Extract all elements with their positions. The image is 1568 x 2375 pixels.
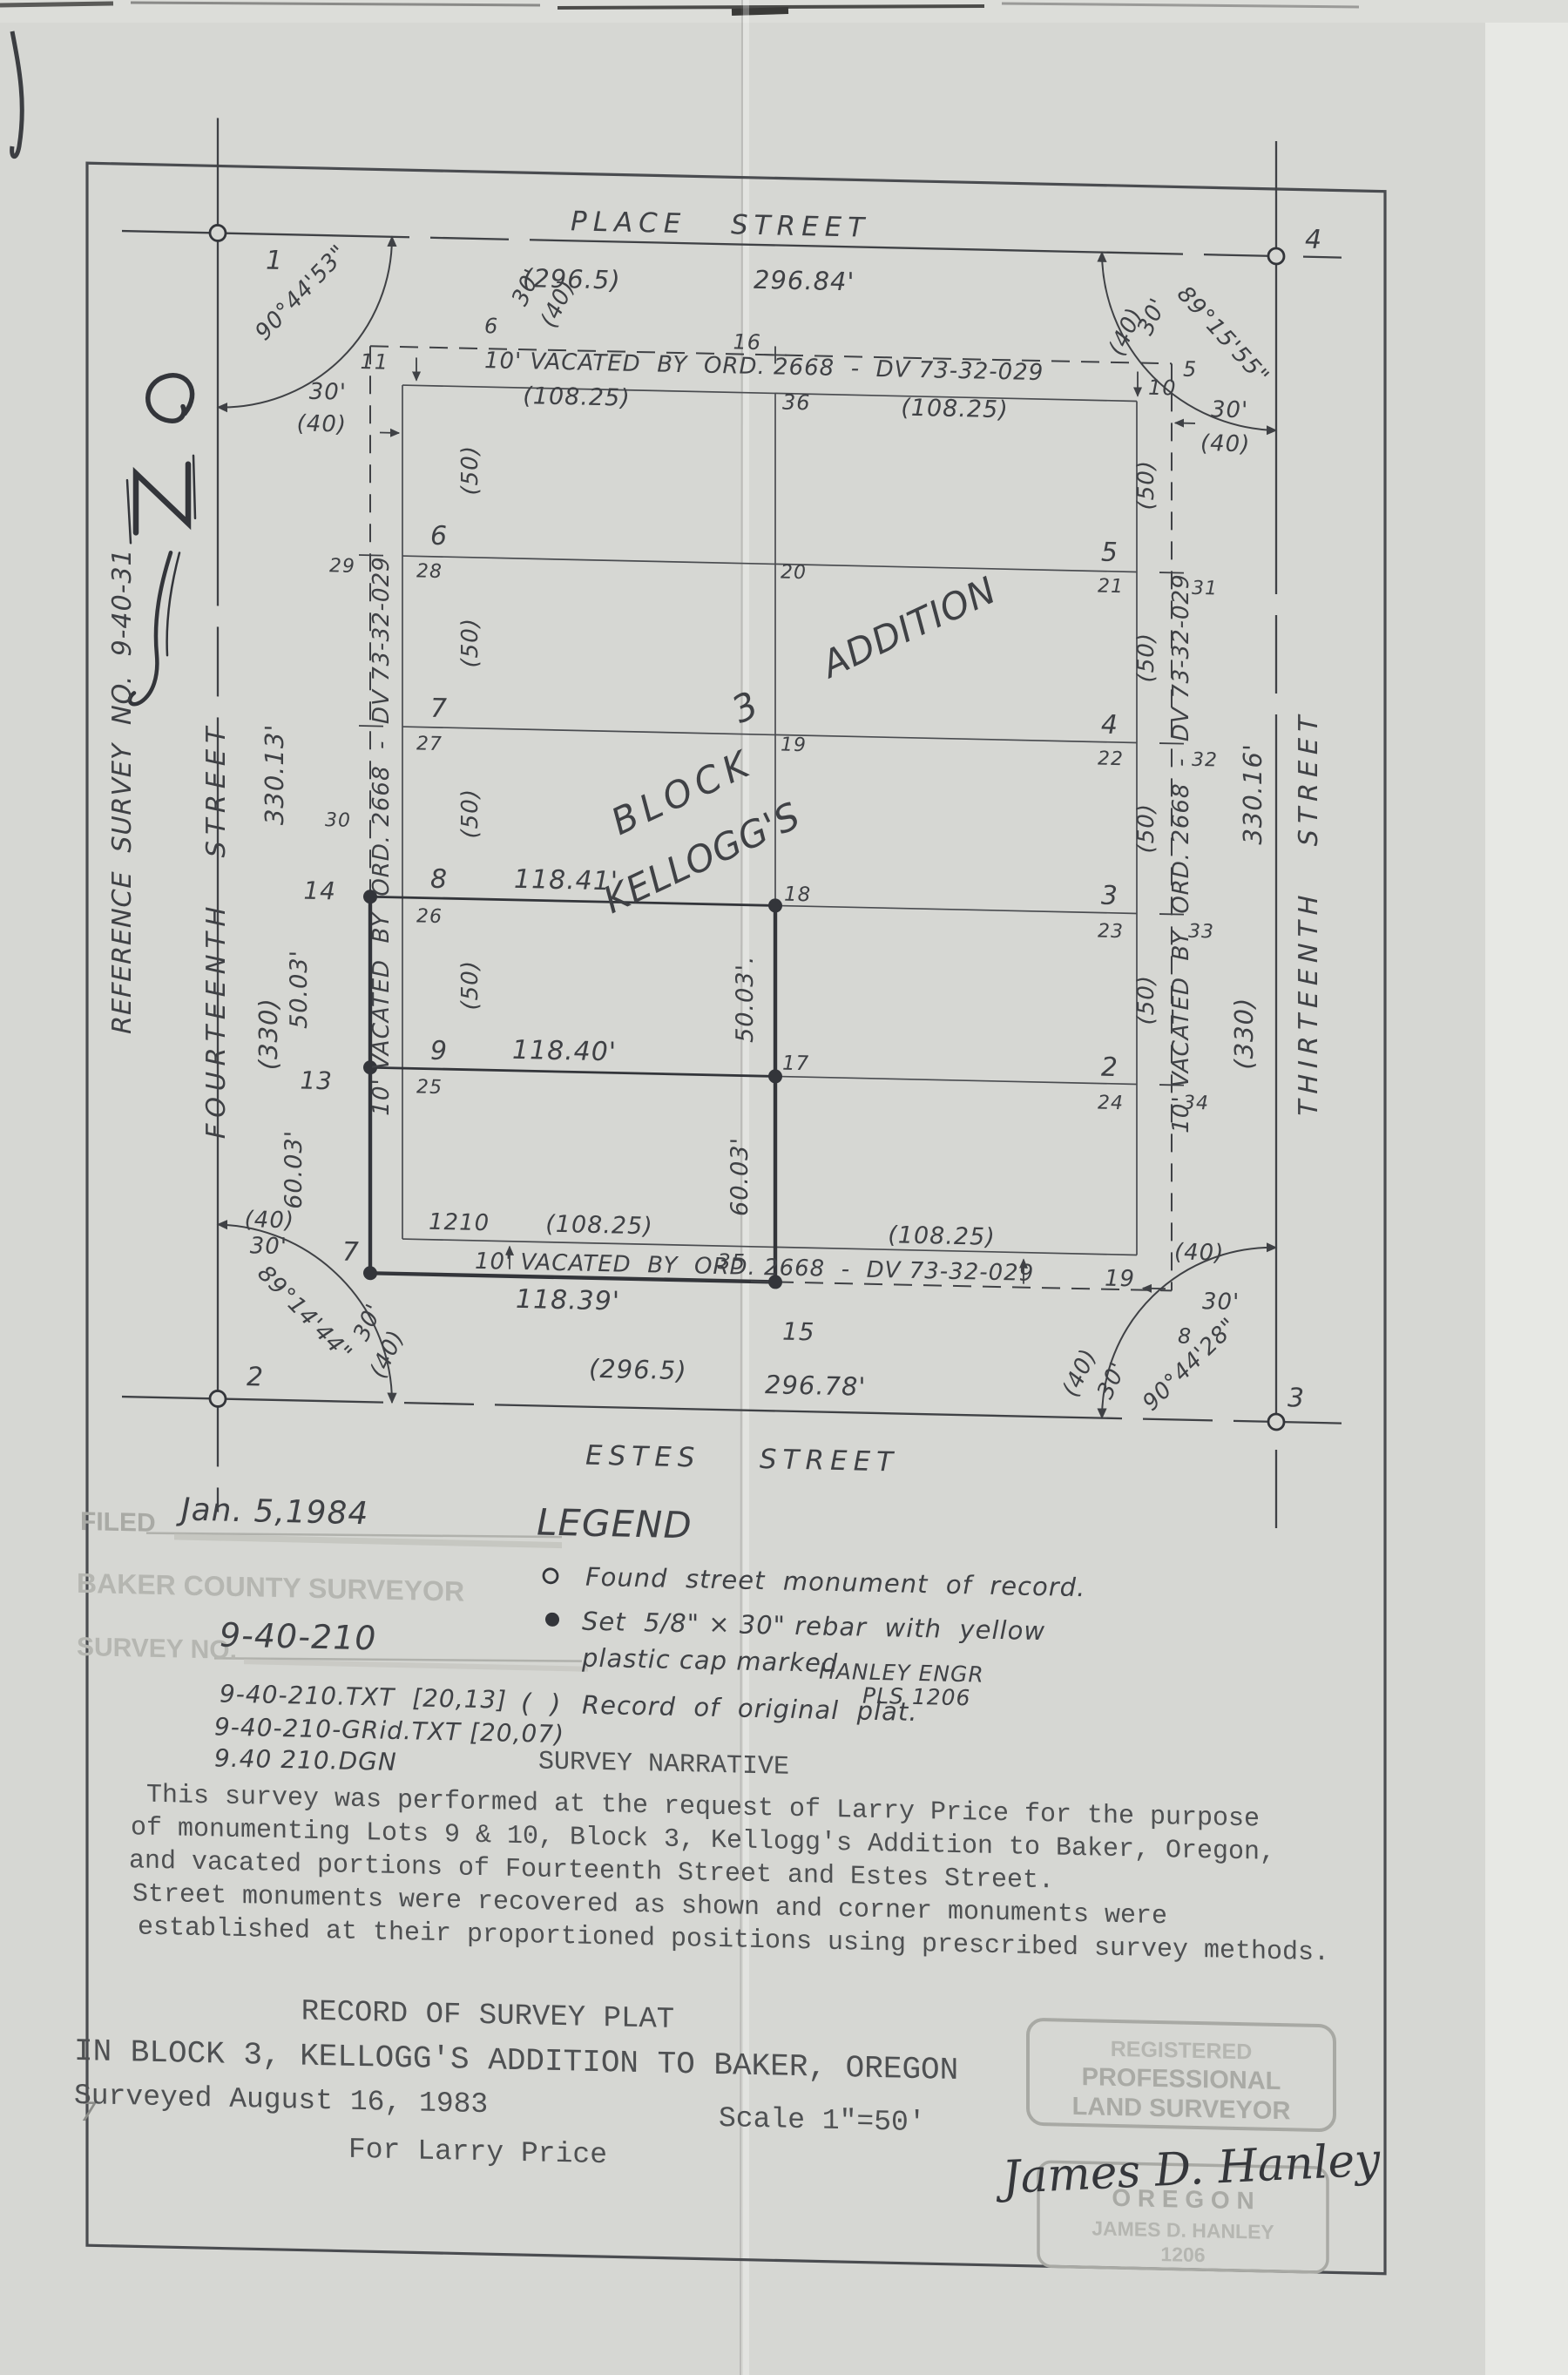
vacated-west: 10' VACATED BY ORD. 2668 - DV 73-32-029 xyxy=(368,556,395,1116)
tick-20: 20 xyxy=(781,562,807,585)
ne-30-h: 30' xyxy=(1211,396,1248,423)
point-label-2: 2 xyxy=(247,1362,264,1392)
stamp-state: O R E G O N xyxy=(1112,2184,1254,2215)
estes-measured: 296.78' xyxy=(765,1370,866,1402)
point-label-4: 4 xyxy=(1305,225,1322,255)
dim-108-25-tl: (108.25) xyxy=(523,382,631,412)
reference-survey-label: REFERENCE SURVEY NO. 9-40-31 xyxy=(107,548,138,1034)
point-label-7: 7 xyxy=(342,1237,360,1268)
tick-21: 21 xyxy=(1098,575,1124,598)
filed-note-3: 9.40 210.DGN xyxy=(214,1743,397,1776)
dim-108-25-tr: (108.25) xyxy=(901,395,1009,424)
title-line-1: RECORD OF SURVEY PLAT xyxy=(301,1996,674,2037)
tick-5: 5 xyxy=(1183,357,1197,382)
dim-108-25-br: (108.25) xyxy=(888,1221,996,1251)
fourteenth-street-name: FOURTEENTH STREET xyxy=(201,721,232,1139)
tick-12-lot-10: 1210 xyxy=(429,1209,490,1237)
tick-30: 30 xyxy=(325,809,351,832)
point-label-13: 13 xyxy=(300,1066,333,1096)
ne-40-h: (40) xyxy=(1200,430,1250,457)
dim-108-25-bl: (108.25) xyxy=(545,1211,653,1241)
angle-sw: 89°14'44" xyxy=(252,1261,356,1367)
set-rebar-18 xyxy=(768,898,782,912)
tick-22: 22 xyxy=(1098,748,1124,770)
filed-label: FILED xyxy=(80,1507,156,1538)
dim-50-w2: (50) xyxy=(457,618,483,668)
set-rebar-17 xyxy=(768,1069,782,1083)
tick-28: 28 xyxy=(416,560,443,583)
tick-8: 8 xyxy=(1178,1324,1192,1349)
dim-60-03-west: 60.03' xyxy=(280,1130,308,1209)
lot-8: 8 xyxy=(430,864,448,895)
dim-50-e4: (50) xyxy=(1133,975,1159,1025)
filed-office: BAKER COUNTY SURVEYOR xyxy=(77,1567,464,1607)
legend-paren: ( ) xyxy=(521,1688,561,1720)
set-rebar-7 xyxy=(363,1266,377,1280)
dim-50-03-west: 50.03' xyxy=(286,950,313,1029)
tick-10: 10 xyxy=(1148,376,1177,401)
fourteenth-measured: 330.13' xyxy=(260,723,289,825)
found-monument-2 xyxy=(210,1390,226,1406)
filed-note-2: 9-40-210-GRid.TXT [20,07) xyxy=(214,1712,564,1749)
lot-4: 4 xyxy=(1101,710,1119,741)
block-addition-2: ADDITION xyxy=(813,568,1004,687)
dim-60-03-mid: 60.03' xyxy=(727,1137,754,1216)
vacated-top: 10' VACATED BY ORD. 2668 - DV 73-32-029 xyxy=(484,348,1044,386)
lot-6: 6 xyxy=(430,521,448,551)
lot-2: 2 xyxy=(1101,1052,1119,1083)
pen-stroke-mark xyxy=(12,31,23,157)
point-label-1: 1 xyxy=(266,246,283,276)
dim-118-40: 118.40' xyxy=(512,1035,617,1068)
filed-note-1: 9-40-210.TXT [20,13] xyxy=(220,1680,507,1715)
tick-27: 27 xyxy=(416,733,443,755)
dim-50-e3: (50) xyxy=(1133,803,1159,854)
lot-7: 7 xyxy=(430,694,448,724)
stamp-land-surveyor: LAND SURVEYOR xyxy=(1072,2093,1291,2125)
dim-50-w3: (50) xyxy=(457,788,483,839)
fourteenth-record: (330) xyxy=(253,998,283,1071)
title-client: For Larry Price xyxy=(348,2134,607,2171)
dim-50-e2: (50) xyxy=(1133,633,1159,683)
tick-24: 24 xyxy=(1098,1092,1124,1114)
point-label-3: 3 xyxy=(1288,1383,1305,1413)
legend-set-1: Set 5/8" × 30" rebar with yellow xyxy=(582,1607,1045,1647)
vacated-east: 10' VACATED BY ORD. 2668 - DV 73-32-029 xyxy=(1168,573,1194,1133)
scan-streak xyxy=(0,3,113,5)
place-measured: 296.84' xyxy=(754,265,855,297)
dim-50-w4: (50) xyxy=(457,960,483,1011)
title-surveyed: Surveyed August 16, 1983 xyxy=(74,2080,488,2121)
filed-survey-no: 9-40-210 xyxy=(220,1616,376,1658)
found-monument-1 xyxy=(210,225,226,240)
legend-title: LEGEND xyxy=(537,1500,693,1546)
legend-found-icon xyxy=(544,1569,558,1583)
place-street-name: PLACE STREET xyxy=(571,206,870,244)
found-monument-3 xyxy=(1268,1414,1284,1430)
thirteenth-street-name: THIRTEENTH STREET xyxy=(1294,709,1324,1116)
survey-plat-canvas: PLACE STREET(296.5)296.84'ESTES STREET(2… xyxy=(0,0,1568,2375)
sw-30-h: 30' xyxy=(250,1233,287,1260)
filed-survey-no-label: SURVEY NO. xyxy=(77,1633,237,1665)
tick-19-mid: 19 xyxy=(781,734,807,757)
tick-6: 6 xyxy=(484,314,498,338)
dim-50-e1: (50) xyxy=(1133,460,1159,511)
tick-31: 31 xyxy=(1192,578,1218,600)
nw-40-h: (40) xyxy=(297,410,347,437)
filed-date: Jan. 5,1984 xyxy=(176,1492,368,1532)
stamp-professional: PROFESSIONAL xyxy=(1082,2063,1281,2095)
narrative-title: SURVEY NARRATIVE xyxy=(538,1747,789,1782)
point-label-17: 17 xyxy=(782,1052,809,1076)
tick-26: 26 xyxy=(416,905,443,928)
found-monument-4 xyxy=(1268,248,1284,264)
scan-right-strip xyxy=(1485,0,1568,2375)
sw-40-h: (40) xyxy=(245,1207,294,1234)
stamp-number: 1206 xyxy=(1160,2243,1205,2266)
tick-25: 25 xyxy=(416,1076,443,1099)
plat-labels: PLACE STREET(296.5)296.84'ESTES STREET(2… xyxy=(74,195,1382,2270)
tick-23: 23 xyxy=(1098,920,1124,943)
scanned-survey-plat-page: PLACE STREET(296.5)296.84'ESTES STREET(2… xyxy=(0,0,1568,2375)
tick-19-se: 19 xyxy=(1105,1266,1135,1293)
lot-5: 5 xyxy=(1101,538,1119,568)
point-label-14: 14 xyxy=(303,876,336,906)
sheet: PLACE STREET(296.5)296.84'ESTES STREET(2… xyxy=(74,115,1385,2274)
tick-29: 29 xyxy=(329,555,355,578)
scan-notch xyxy=(732,10,788,12)
thirteenth-measured: 330.16' xyxy=(1238,743,1267,845)
stamp-registered: REGISTERED xyxy=(1111,2037,1253,2065)
tick-32: 32 xyxy=(1192,749,1218,772)
lot-3: 3 xyxy=(1101,881,1119,911)
dim-118-39: 118.39' xyxy=(516,1284,620,1317)
dim-50-03-mid: 50.03'. xyxy=(732,955,759,1043)
tick-11: 11 xyxy=(360,349,389,375)
thirteenth-record: (330) xyxy=(1229,997,1259,1070)
se-40-h: (40) xyxy=(1174,1239,1224,1266)
legend-set-2: plastic cap marked xyxy=(581,1643,838,1678)
point-label-15: 15 xyxy=(782,1317,815,1347)
point-label-18: 18 xyxy=(784,883,811,907)
lot-9: 9 xyxy=(430,1036,448,1066)
tick-16: 16 xyxy=(733,329,761,355)
estes-street-name: ESTES STREET xyxy=(585,1440,899,1478)
title-line-2: IN BLOCK 3, KELLOGG'S ADDITION TO BAKER,… xyxy=(74,2033,958,2088)
stamp-name: JAMES D. HANLEY xyxy=(1092,2216,1274,2243)
se-30-h: 30' xyxy=(1202,1289,1240,1316)
title-scale: Scale 1"=50' xyxy=(719,2102,926,2139)
block-number: 3 xyxy=(725,683,765,732)
legend-found: Found street monument of record. xyxy=(585,1562,1085,1603)
legend-record: Record of original plat. xyxy=(582,1690,917,1727)
arc-nw xyxy=(218,233,392,410)
tick-36: 36 xyxy=(782,390,811,416)
dim-50-w1: (50) xyxy=(457,445,483,496)
estes-record: (296.5) xyxy=(589,1354,687,1385)
nw-30-h: 30' xyxy=(309,379,347,406)
legend-set-icon xyxy=(545,1613,559,1627)
